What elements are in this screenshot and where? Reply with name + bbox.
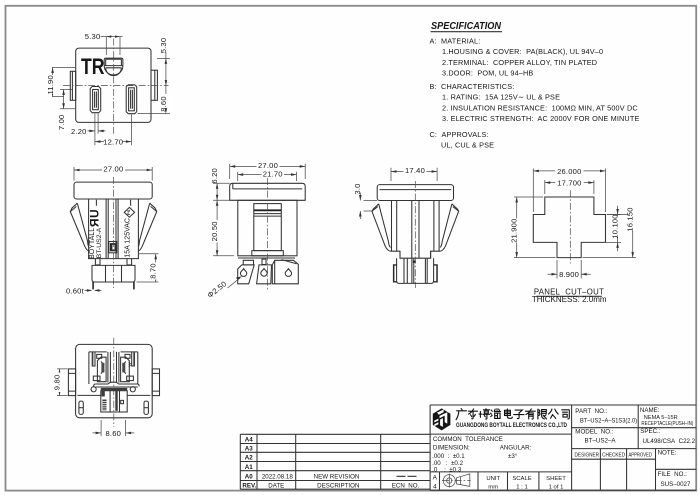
svg-text:3.DOOR: POM, UL 94–HB: 3.DOOR: POM, UL 94–HB [442, 69, 533, 78]
svg-text:TR: TR [81, 54, 105, 79]
svg-text:W: W [128, 362, 133, 367]
svg-text:REV.: REV. [242, 482, 256, 489]
svg-text:8.60: 8.60 [106, 429, 122, 438]
svg-text:1 : 1: 1 : 1 [516, 484, 527, 490]
svg-text:DESCRIPTION: DESCRIPTION [317, 482, 359, 489]
svg-text:17.700: 17.700 [557, 179, 581, 188]
svg-text:NEW REVISION: NEW REVISION [314, 474, 360, 481]
svg-text:SUS–0027: SUS–0027 [661, 481, 691, 488]
svg-text:A4: A4 [245, 437, 253, 444]
svg-text:3. ELECTRIC STRENGTH: AC 2000: 3. ELECTRIC STRENGTH: AC 2000V FOR ONE M… [442, 114, 639, 123]
svg-text:.0 : ±0.3: .0 : ±0.3 [432, 467, 462, 474]
svg-text:2022.08.18: 2022.08.18 [262, 474, 294, 481]
svg-text:APPROVED: APPROVED [628, 452, 652, 458]
svg-text:A0: A0 [245, 474, 253, 481]
svg-text:ANGULAR:: ANGULAR: [500, 445, 532, 452]
svg-text:21.900: 21.900 [510, 218, 519, 242]
svg-text:A: MATERIAL:: A: MATERIAL: [430, 37, 481, 46]
svg-text:1. RATING: 15A 125V∼ UL & PSE: 1. RATING: 15A 125V∼ UL & PSE [442, 93, 560, 102]
svg-text:17.40: 17.40 [405, 166, 425, 175]
svg-text:2. INSULATION RESISTANCE: 100: 2. INSULATION RESISTANCE: 100MΩ MIN, AT … [442, 103, 638, 112]
svg-text:1.HOUSING & COVER: PA(BLACK),: 1.HOUSING & COVER: PA(BLACK), UL 94V–0 [442, 47, 603, 56]
svg-text:DESIGNER: DESIGNER [575, 452, 600, 458]
svg-text:ECN NO.: ECN NO. [392, 482, 420, 489]
svg-text:SHEET: SHEET [546, 476, 566, 482]
svg-text:SPECIFICATION: SPECIFICATION [431, 21, 502, 32]
svg-text:8.900: 8.900 [559, 270, 579, 279]
svg-text:UNIT: UNIT [486, 476, 500, 482]
svg-text:26.000: 26.000 [557, 167, 581, 176]
svg-text:COMMON TOLERANCE: COMMON TOLERANCE [433, 436, 503, 443]
svg-text:NAME:: NAME: [640, 407, 660, 414]
svg-text:DIMENSION:: DIMENSION: [433, 445, 470, 452]
svg-text:8.70: 8.70 [149, 263, 158, 279]
svg-text:0.60t: 0.60t [66, 287, 85, 296]
svg-text:UL498/CSA C22.2: UL498/CSA C22.2 [643, 438, 696, 445]
svg-text:4: 4 [433, 483, 437, 490]
svg-text:B: CHARACTERISTICS:: B: CHARACTERISTICS: [430, 82, 515, 91]
svg-text:6.20: 6.20 [210, 168, 219, 184]
svg-text:12.70: 12.70 [103, 137, 123, 146]
svg-text:THICKNESS: 2.0mm: THICKNESS: 2.0mm [532, 295, 607, 304]
svg-text:NOTE:: NOTE: [658, 450, 677, 457]
svg-text:9.80: 9.80 [52, 375, 61, 391]
svg-text:21.70: 21.70 [263, 169, 283, 178]
svg-text:16.150: 16.150 [626, 207, 635, 231]
svg-text:FILE NO.:: FILE NO.: [658, 471, 688, 478]
svg-text:.000 : ±0.1: .000 : ±0.1 [432, 453, 465, 460]
svg-text:PART NO.:: PART NO.: [575, 408, 607, 415]
svg-text:3.0: 3.0 [353, 183, 362, 194]
svg-text:2.20: 2.20 [71, 127, 87, 136]
svg-text:7.00: 7.00 [57, 115, 66, 131]
svg-text:MODEL NO.:: MODEL NO.: [575, 429, 613, 436]
svg-text:A2: A2 [245, 455, 253, 462]
svg-text:5.30: 5.30 [159, 38, 168, 54]
svg-text:±3°: ±3° [508, 453, 518, 460]
svg-text:ЯU: ЯU [87, 209, 101, 227]
svg-text:RECEPTACLE(PUSH–IN): RECEPTACLE(PUSH–IN) [641, 421, 693, 427]
svg-text:A3: A3 [245, 446, 253, 453]
svg-text:10.100: 10.100 [611, 214, 620, 238]
svg-text:20.50: 20.50 [210, 221, 219, 241]
svg-text:C: APPROVALS:: C: APPROVALS: [430, 130, 489, 139]
svg-text:SCALE: SCALE [512, 476, 531, 482]
svg-text:UL, CUL & PSE: UL, CUL & PSE [441, 141, 494, 150]
svg-text:5.30: 5.30 [85, 32, 101, 41]
svg-text:27.00: 27.00 [103, 164, 123, 173]
svg-text:PS: PS [126, 209, 131, 215]
svg-text:BT-US2-A: BT-US2-A [96, 227, 103, 258]
svg-text:15A 125VAC: 15A 125VAC [125, 218, 132, 258]
svg-text:BOYTALL: BOYTALL [89, 228, 96, 259]
svg-text:SPEC.:: SPEC.: [640, 428, 661, 435]
svg-text:2.TERMINAL: COPPER ALLOY, TIN: 2.TERMINAL: COPPER ALLOY, TIN PLATED [442, 58, 597, 67]
svg-text:GUANGDONG BOYTALL ELECTRONICS: GUANGDONG BOYTALL ELECTRONICS CO.,LTD [456, 422, 567, 429]
svg-text:A: A [433, 475, 438, 482]
svg-text:mm: mm [488, 484, 498, 490]
svg-text:1 of 1: 1 of 1 [549, 484, 564, 490]
svg-text:A1: A1 [245, 464, 253, 471]
svg-text:BT–US2–A: BT–US2–A [585, 438, 617, 445]
svg-text:BT–US2–A–S1S3(2.0): BT–US2–A–S1S3(2.0) [580, 418, 637, 425]
svg-text:DATE: DATE [268, 482, 284, 489]
svg-text:CHECKED: CHECKED [602, 452, 625, 458]
svg-text:11.90: 11.90 [46, 75, 55, 94]
